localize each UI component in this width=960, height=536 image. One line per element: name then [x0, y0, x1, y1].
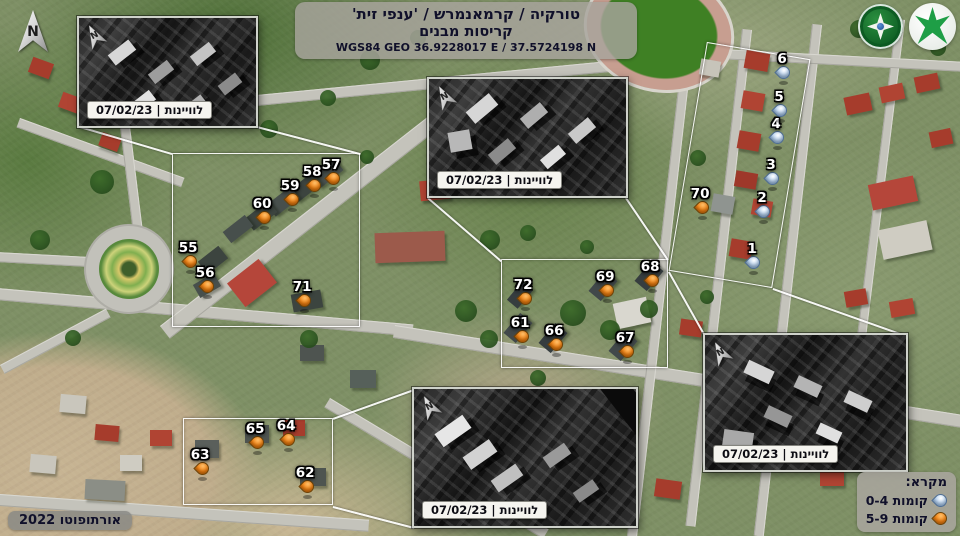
legend-item-label: 5-9 קומות: [866, 511, 928, 526]
marker-shadow: [648, 289, 657, 293]
marker-shadow: [253, 451, 262, 455]
inset-date-label: לוויינות | 07/02/23: [713, 445, 838, 463]
marker-number: 71: [293, 279, 312, 295]
inset-date-label: לוויינות | 07/02/23: [437, 171, 562, 189]
marker-shadow: [779, 81, 788, 85]
area-outline-middle-cluster: [501, 259, 668, 368]
marker-number: 2: [757, 190, 766, 206]
legend: מקרא: 0-4 קומות 5-9 קומות: [857, 472, 956, 532]
marker-number: 60: [253, 196, 272, 212]
marker-shadow: [284, 448, 293, 452]
intelligence-corps-logo-icon: [858, 4, 903, 49]
marker-number: 68: [641, 259, 660, 275]
orange-pin-icon: [931, 509, 949, 527]
marker-number: 6: [777, 51, 786, 67]
marker-shadow: [776, 119, 785, 123]
marker-shadow: [552, 353, 561, 357]
marker-shadow: [310, 194, 319, 198]
marker-shadow: [603, 299, 612, 303]
marker-number: 61: [511, 315, 530, 331]
marker-shadow: [768, 187, 777, 191]
legend-item-low-rise: 0-4 קומות: [866, 493, 947, 508]
title-subject: קריסות מבנים: [303, 24, 629, 41]
inset-satellite-right: N לוויינות | 07/02/23: [703, 333, 908, 472]
satellite-analysis-image: 5556575859606162636465666768697071721234…: [0, 0, 960, 536]
marker-number: 62: [296, 465, 315, 481]
marker-number: 66: [545, 323, 564, 339]
marker-number: 59: [281, 178, 300, 194]
unit-logos: [858, 3, 956, 50]
marker-shadow: [623, 360, 632, 364]
marker-number: 67: [616, 330, 635, 346]
legend-item-label: 0-4 קומות: [866, 493, 928, 508]
marker-shadow: [329, 187, 338, 191]
marker-number: 55: [179, 240, 198, 256]
marker-shadow: [303, 495, 312, 499]
inset-satellite-bottom-center: N לוויינות | 07/02/23: [412, 387, 638, 528]
marker-number: 3: [766, 157, 775, 173]
marker-shadow: [260, 226, 269, 230]
marker-shadow: [521, 307, 530, 311]
marker-number: 69: [596, 269, 615, 285]
north-arrow-icon: N: [18, 10, 48, 52]
marker-shadow: [518, 345, 527, 349]
inset-satellite-top-center: N לוויינות | 07/02/23: [427, 77, 628, 198]
blue-pin-icon: [931, 491, 949, 509]
title-location: טורקיה / קרמאנמרש / 'ענפי זית': [303, 5, 629, 24]
marker-shadow: [759, 220, 768, 224]
title-box: טורקיה / קרמאנמרש / 'ענפי זית' קריסות מב…: [295, 2, 637, 59]
legend-item-high-rise: 5-9 קומות: [866, 511, 947, 526]
marker-number: 57: [322, 157, 341, 173]
marker-number: 56: [196, 265, 215, 281]
marker-shadow: [698, 216, 707, 220]
marker-shadow: [749, 271, 758, 275]
marker-number: 1: [747, 241, 756, 257]
marker-shadow: [773, 146, 782, 150]
marker-shadow: [300, 309, 309, 313]
marker-number: 63: [191, 447, 210, 463]
marker-shadow: [203, 295, 212, 299]
marker-number: 58: [303, 164, 322, 180]
inset-satellite-top-left: N לוויינות | 07/02/23: [77, 16, 258, 128]
marker-shadow: [288, 208, 297, 212]
legend-title: מקרא:: [866, 475, 947, 490]
marker-shadow: [198, 477, 207, 481]
marker-number: 70: [691, 186, 710, 202]
marker-number: 5: [774, 89, 783, 105]
military-intelligence-logo-icon: [909, 3, 956, 50]
marker-number: 65: [246, 421, 265, 437]
roundabout-garden: [99, 239, 159, 299]
inset-date-label: לוויינות | 07/02/23: [422, 501, 547, 519]
marker-number: 64: [277, 418, 296, 434]
inset-date-label: לוויינות | 07/02/23: [87, 101, 212, 119]
source-label: אורתופוטו 2022: [8, 511, 132, 530]
north-label: N: [18, 24, 48, 40]
marker-number: 72: [514, 277, 533, 293]
marker-shadow: [186, 270, 195, 274]
title-coordinates: WGS84 GEO 36.9228017 E / 37.5724198 N: [303, 41, 629, 55]
roundabout: [86, 226, 172, 312]
